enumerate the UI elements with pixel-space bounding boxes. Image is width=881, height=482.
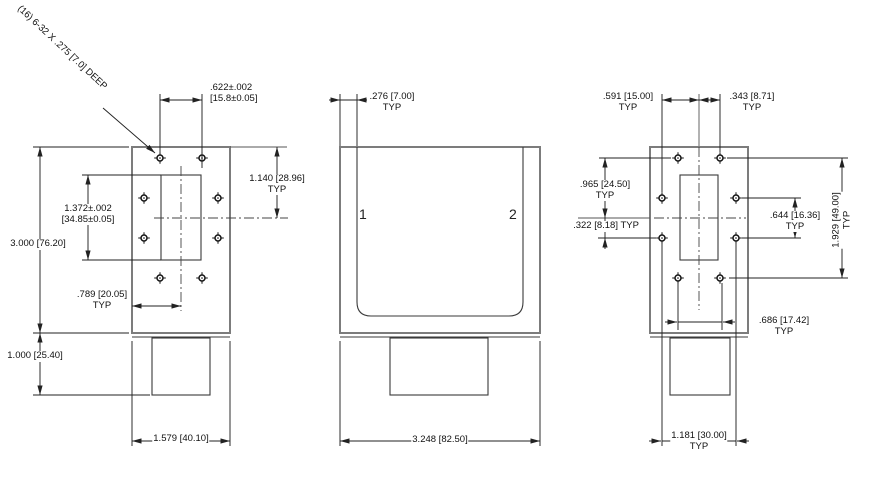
right-connector-outline bbox=[670, 338, 730, 395]
hole-marker bbox=[714, 272, 726, 284]
thread-note-leader bbox=[103, 108, 155, 153]
hole-marker bbox=[138, 232, 150, 244]
hole-marker bbox=[730, 232, 742, 244]
hole-marker bbox=[656, 232, 668, 244]
right-view-geometry bbox=[578, 94, 848, 446]
hole-marker bbox=[672, 272, 684, 284]
dim-1579-label: 1.579 [40.10] bbox=[152, 434, 209, 445]
hole-marker bbox=[212, 232, 224, 244]
hole-marker bbox=[196, 272, 208, 284]
dim-789-label: .789 [20.05] TYP bbox=[77, 290, 127, 311]
dim-622-label: .622±.002 [15.8±0.05] bbox=[210, 83, 257, 104]
dim-276-label: .276 [7.00] TYP bbox=[370, 92, 415, 113]
hole-marker bbox=[714, 152, 726, 164]
dim-322-label: .322 [8.18] TYP bbox=[572, 221, 640, 232]
dim-1140-label: 1.140 [28.96] TYP bbox=[248, 174, 305, 195]
hole-marker bbox=[138, 192, 150, 204]
dim-965-label: .965 [24.50] TYP bbox=[579, 180, 631, 201]
front-view-geometry bbox=[329, 94, 540, 446]
hole-marker bbox=[656, 192, 668, 204]
engineering-drawing-canvas: (16) 6-32 X .275 [7.0] DEEP .622±.002 [1… bbox=[0, 0, 881, 482]
dim-343-label: .343 [8.71] TYP bbox=[730, 92, 775, 113]
hole-marker bbox=[154, 272, 166, 284]
front-body-outline bbox=[340, 147, 540, 333]
hole-marker bbox=[212, 192, 224, 204]
hole-marker bbox=[154, 152, 166, 164]
dim-1372-label: 1.372±.002 [34.85±0.05] bbox=[61, 204, 116, 225]
front-connector-outline bbox=[390, 338, 488, 395]
left-view-geometry bbox=[33, 94, 288, 446]
dim-1000-label: 1.000 [25.40] bbox=[6, 351, 63, 362]
hole-marker bbox=[730, 192, 742, 204]
hole-marker bbox=[672, 152, 684, 164]
dim-3248-label: 3.248 [82.50] bbox=[411, 435, 468, 446]
dim-644-label: .644 [16.36] TYP bbox=[769, 211, 821, 232]
drawing-linework bbox=[0, 0, 881, 482]
dim-1181-label: 1.181 [30.00] TYP bbox=[670, 431, 727, 452]
port-1-label: 1 bbox=[359, 206, 367, 222]
front-cavity-outline bbox=[357, 147, 523, 316]
left-connector-outline bbox=[152, 338, 210, 395]
dim-1929-label: 1.929 [49.00] TYP bbox=[832, 191, 853, 248]
port-2-label: 2 bbox=[509, 206, 517, 222]
dim-591-label: .591 [15.00] TYP bbox=[603, 92, 653, 113]
dim-3000-label: 3.000 [76.20] bbox=[9, 239, 66, 250]
dim-686-label: .686 [17.42] TYP bbox=[759, 316, 809, 337]
